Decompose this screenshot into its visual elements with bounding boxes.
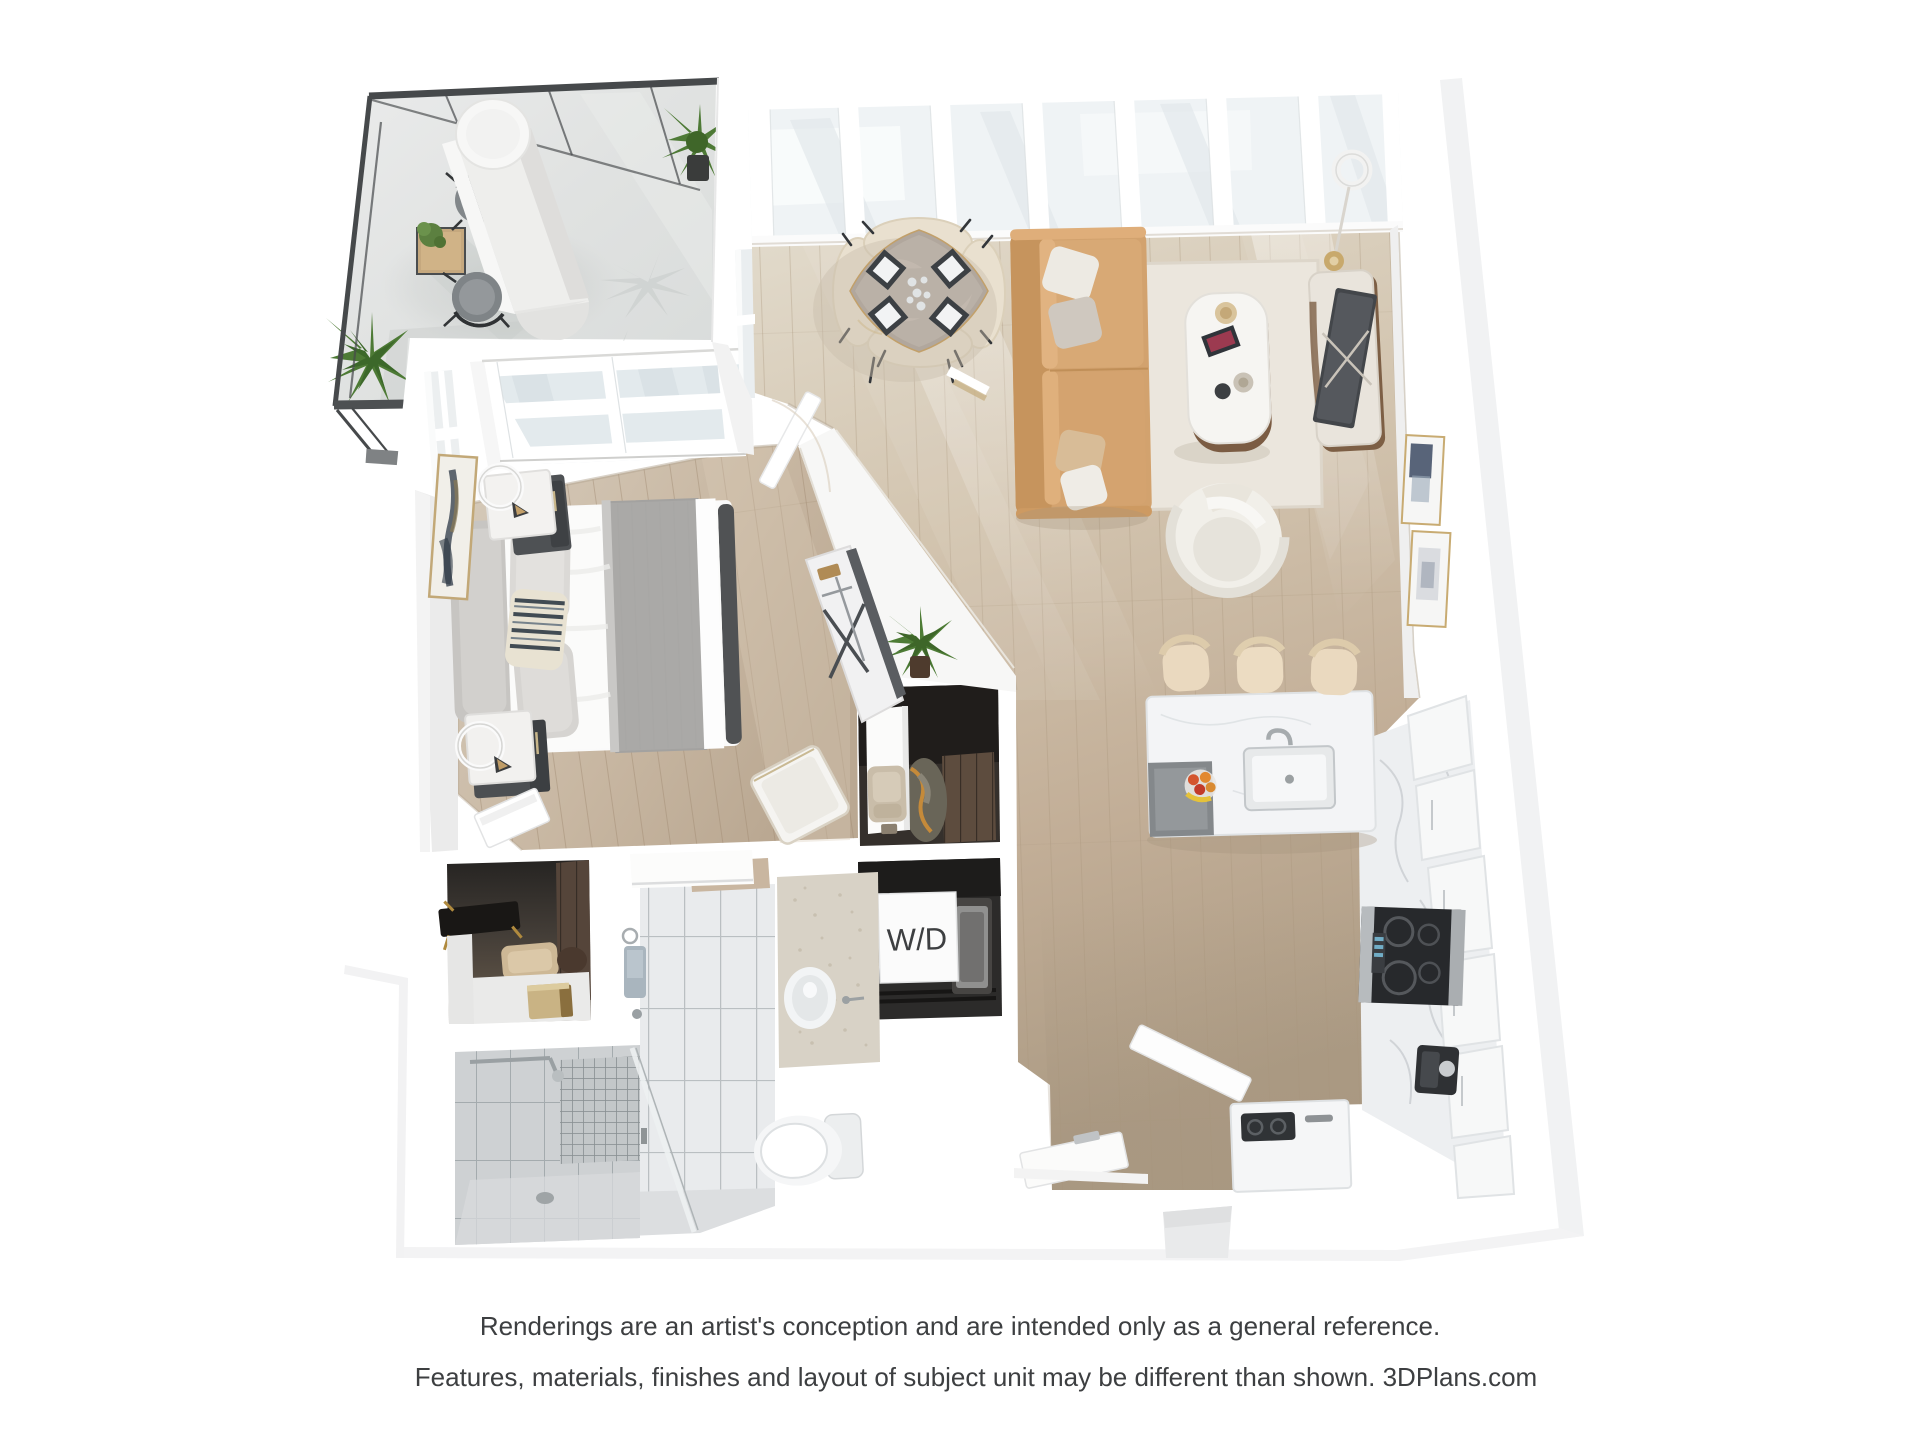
svg-text:Renderings are an artist's con: Renderings are an artist's conception an…	[480, 1311, 1440, 1341]
svg-text:W/D: W/D	[886, 921, 947, 958]
svg-text:Features, materials, finishes: Features, materials, finishes and layout…	[415, 1362, 1537, 1392]
